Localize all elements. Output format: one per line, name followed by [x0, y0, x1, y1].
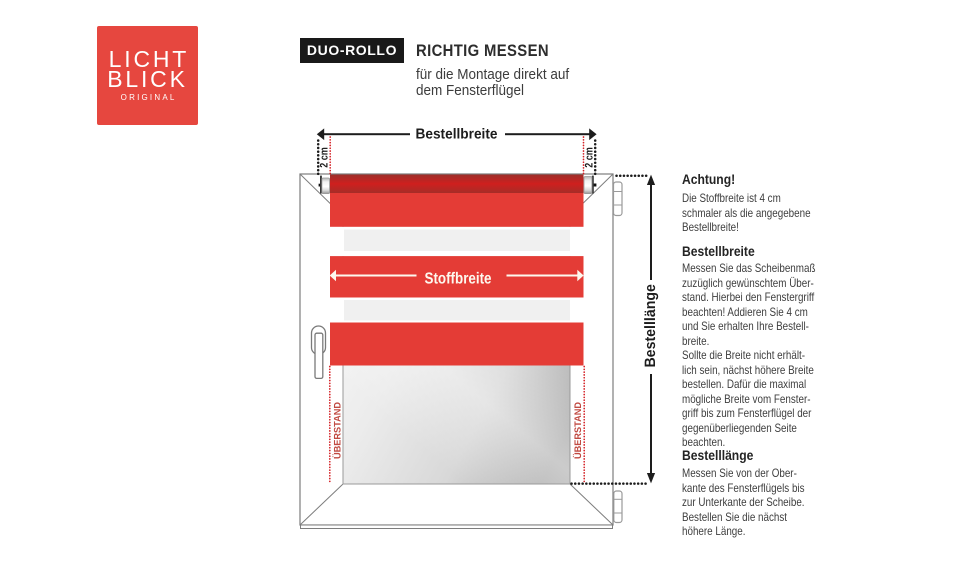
svg-text:Bestellbreite: Bestellbreite: [416, 127, 498, 143]
svg-text:Stoffbreite: Stoffbreite: [425, 270, 492, 287]
svg-text:ÜBERSTAND: ÜBERSTAND: [331, 402, 343, 459]
svg-text:2 cm: 2 cm: [319, 147, 331, 168]
svg-text:2 cm: 2 cm: [583, 147, 595, 168]
svg-text:ÜBERSTAND: ÜBERSTAND: [572, 402, 584, 459]
svg-text:Bestelllänge: Bestelllänge: [642, 284, 659, 368]
